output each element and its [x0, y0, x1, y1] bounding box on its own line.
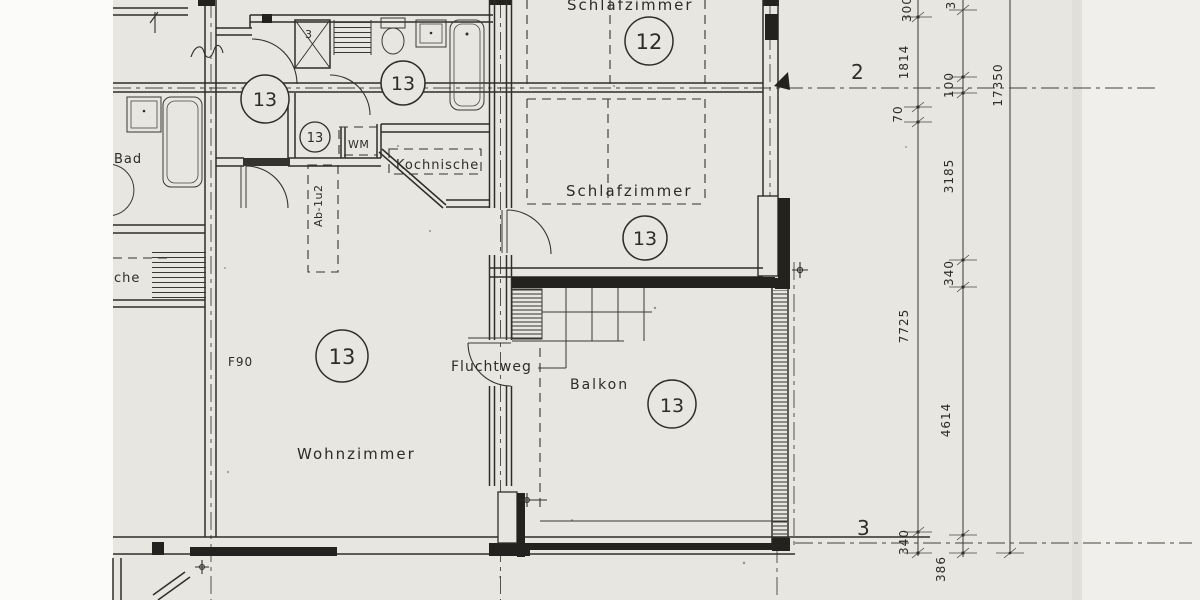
label-f90: F90 [228, 355, 253, 369]
stair-hatch-kueche [152, 252, 206, 300]
unit-number-schlafzimmer: 13 [633, 228, 657, 250]
unit-number-12: 12 [636, 30, 663, 54]
dim-4614: 4614 [939, 403, 953, 438]
floorplan-drawing: 300 1814 70 7725 340 3 100 3185 340 4614… [0, 0, 1200, 600]
dim-100: 100 [942, 72, 956, 98]
unit-number-bath: 13 [391, 73, 415, 95]
dim-70: 70 [891, 105, 905, 122]
stair-hatch-top [334, 20, 371, 55]
room-label-bad: Bad [114, 152, 142, 167]
dim-3185: 3185 [942, 159, 956, 194]
unit-number-wc: 13 [307, 131, 324, 146]
dim-300: 300 [900, 0, 914, 22]
label-fluchtweg: Fluchtweg [451, 359, 532, 375]
escape-ladder [512, 289, 542, 339]
room-label-wohnzimmer: Wohnzimmer [297, 445, 416, 463]
dim-340-outer: 340 [942, 260, 956, 286]
section-marker-3: 3 [857, 516, 870, 540]
label-shaft-number: 3 [305, 28, 313, 41]
dim-17350: 17350 [991, 63, 1005, 106]
room-label-kochnische: Kochnische [396, 158, 479, 173]
room-label-schlafzimmer: Schlafzimmer [566, 182, 693, 200]
label-ab-shaft: Ab-1u2 [312, 185, 325, 227]
section-marker-2: 2 [851, 60, 864, 84]
room-label-balkon: Balkon [570, 377, 629, 393]
room-label-kueche-partial: che [114, 271, 140, 286]
label-wm: WM [348, 138, 369, 151]
unit-number-balkon: 13 [660, 395, 684, 417]
dim-1814: 1814 [897, 45, 911, 80]
dim-386: 386 [934, 556, 948, 582]
unit-number-wohnzimmer: 13 [329, 345, 356, 369]
room-label-schlafzimmer-top: Schlafzimmer [567, 0, 694, 14]
wohnzimmer-door-lintel [243, 158, 290, 166]
dim-7725: 7725 [897, 309, 911, 344]
floorplan-scan: 300 1814 70 7725 340 3 100 3185 340 4614… [0, 0, 1200, 600]
dim-340-inner: 340 [897, 529, 911, 555]
dim-3-partial: 3 [944, 1, 958, 10]
unit-number-hall: 13 [253, 89, 277, 111]
